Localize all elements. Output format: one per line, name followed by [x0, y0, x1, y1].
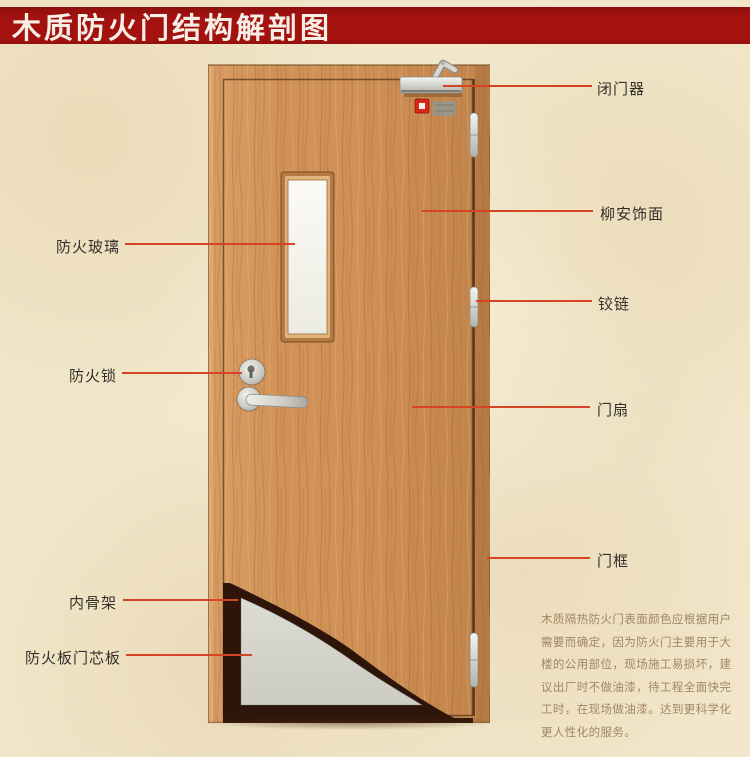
- label-fire-board-core: 防火板门芯板: [25, 647, 121, 668]
- description-line: 更人性化的服务。: [541, 722, 731, 745]
- leader-line-door-frame: [487, 557, 590, 559]
- fire-alarm-indicator-icon: [415, 99, 429, 113]
- label-fire-lock: 防火锁: [69, 365, 117, 386]
- hinge-bottom-icon: [470, 633, 478, 687]
- leader-line-door-leaf: [412, 406, 590, 408]
- leader-line-fire-board-core: [126, 654, 252, 656]
- description-paragraph: 木质隔热防火门表面颜色应根据用户 需要而确定，因为防火门主要用于大 楼的公用部位…: [541, 609, 731, 745]
- label-fire-glass: 防火玻璃: [56, 236, 120, 257]
- fire-glass-window: [281, 172, 334, 342]
- description-line: 楼的公用部位，现场施工易损坏，建: [541, 654, 731, 677]
- description-line: 工时，在现场做油漆。达到更科学化: [541, 699, 731, 722]
- door-illustration-wrap: [208, 58, 490, 723]
- floor-shadow: [202, 714, 498, 730]
- leader-line-door-closer: [443, 85, 592, 87]
- description-line: 议出厂时不做油漆，待工程全面快完: [541, 677, 731, 700]
- leader-line-lauan-veneer: [422, 210, 593, 212]
- label-lauan-veneer: 柳安饰面: [600, 203, 664, 224]
- label-inner-skeleton: 内骨架: [69, 592, 117, 613]
- label-hinge: 铰链: [598, 293, 630, 314]
- title-banner: 木质防火门结构解剖图: [0, 7, 750, 44]
- leader-line-hinge: [476, 300, 592, 302]
- label-door-frame: 门框: [597, 550, 629, 571]
- fire-lock-keyhole-icon: [239, 359, 265, 385]
- mounting-bracket-icon: [433, 101, 456, 116]
- page: { "title": "木质防火门结构解剖图", "labels": { "le…: [0, 0, 750, 757]
- description-line: 需要而确定，因为防火门主要用于大: [541, 632, 731, 655]
- leader-line-fire-lock: [122, 372, 242, 374]
- label-door-closer: 闭门器: [597, 78, 645, 99]
- description-line: 木质隔热防火门表面颜色应根据用户: [541, 609, 731, 632]
- leader-line-fire-glass: [125, 243, 295, 245]
- door-illustration: [208, 58, 490, 723]
- label-door-leaf: 门扇: [597, 399, 629, 420]
- hinge-middle-icon: [470, 287, 478, 327]
- leader-line-inner-skeleton: [123, 599, 238, 601]
- page-title: 木质防火门结构解剖图: [0, 5, 332, 47]
- hinge-top-icon: [470, 113, 478, 157]
